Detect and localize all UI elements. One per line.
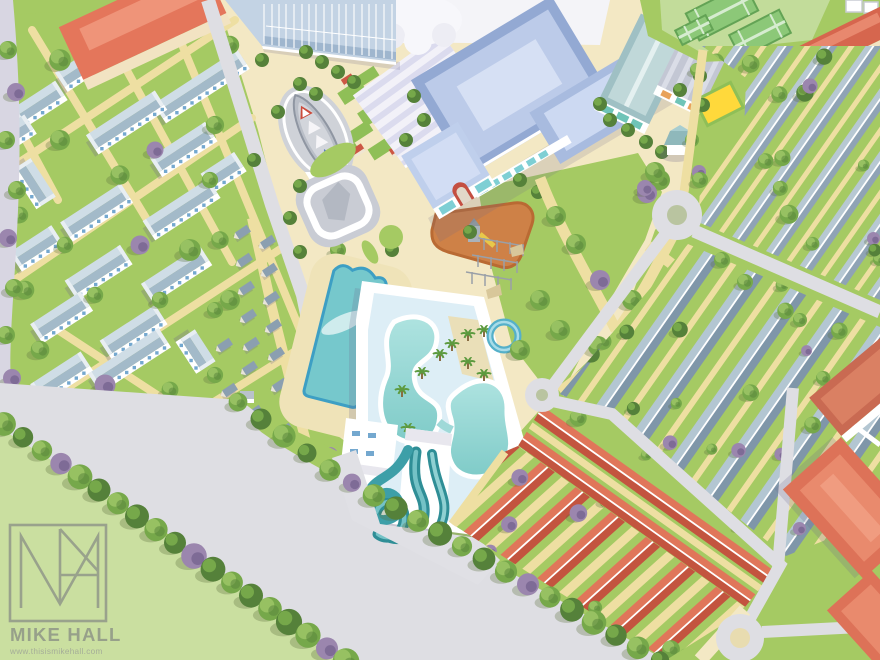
svg-text:MIKE HALL: MIKE HALL bbox=[10, 624, 122, 645]
svg-text:www.thisismikehall.com: www.thisismikehall.com bbox=[9, 647, 103, 656]
